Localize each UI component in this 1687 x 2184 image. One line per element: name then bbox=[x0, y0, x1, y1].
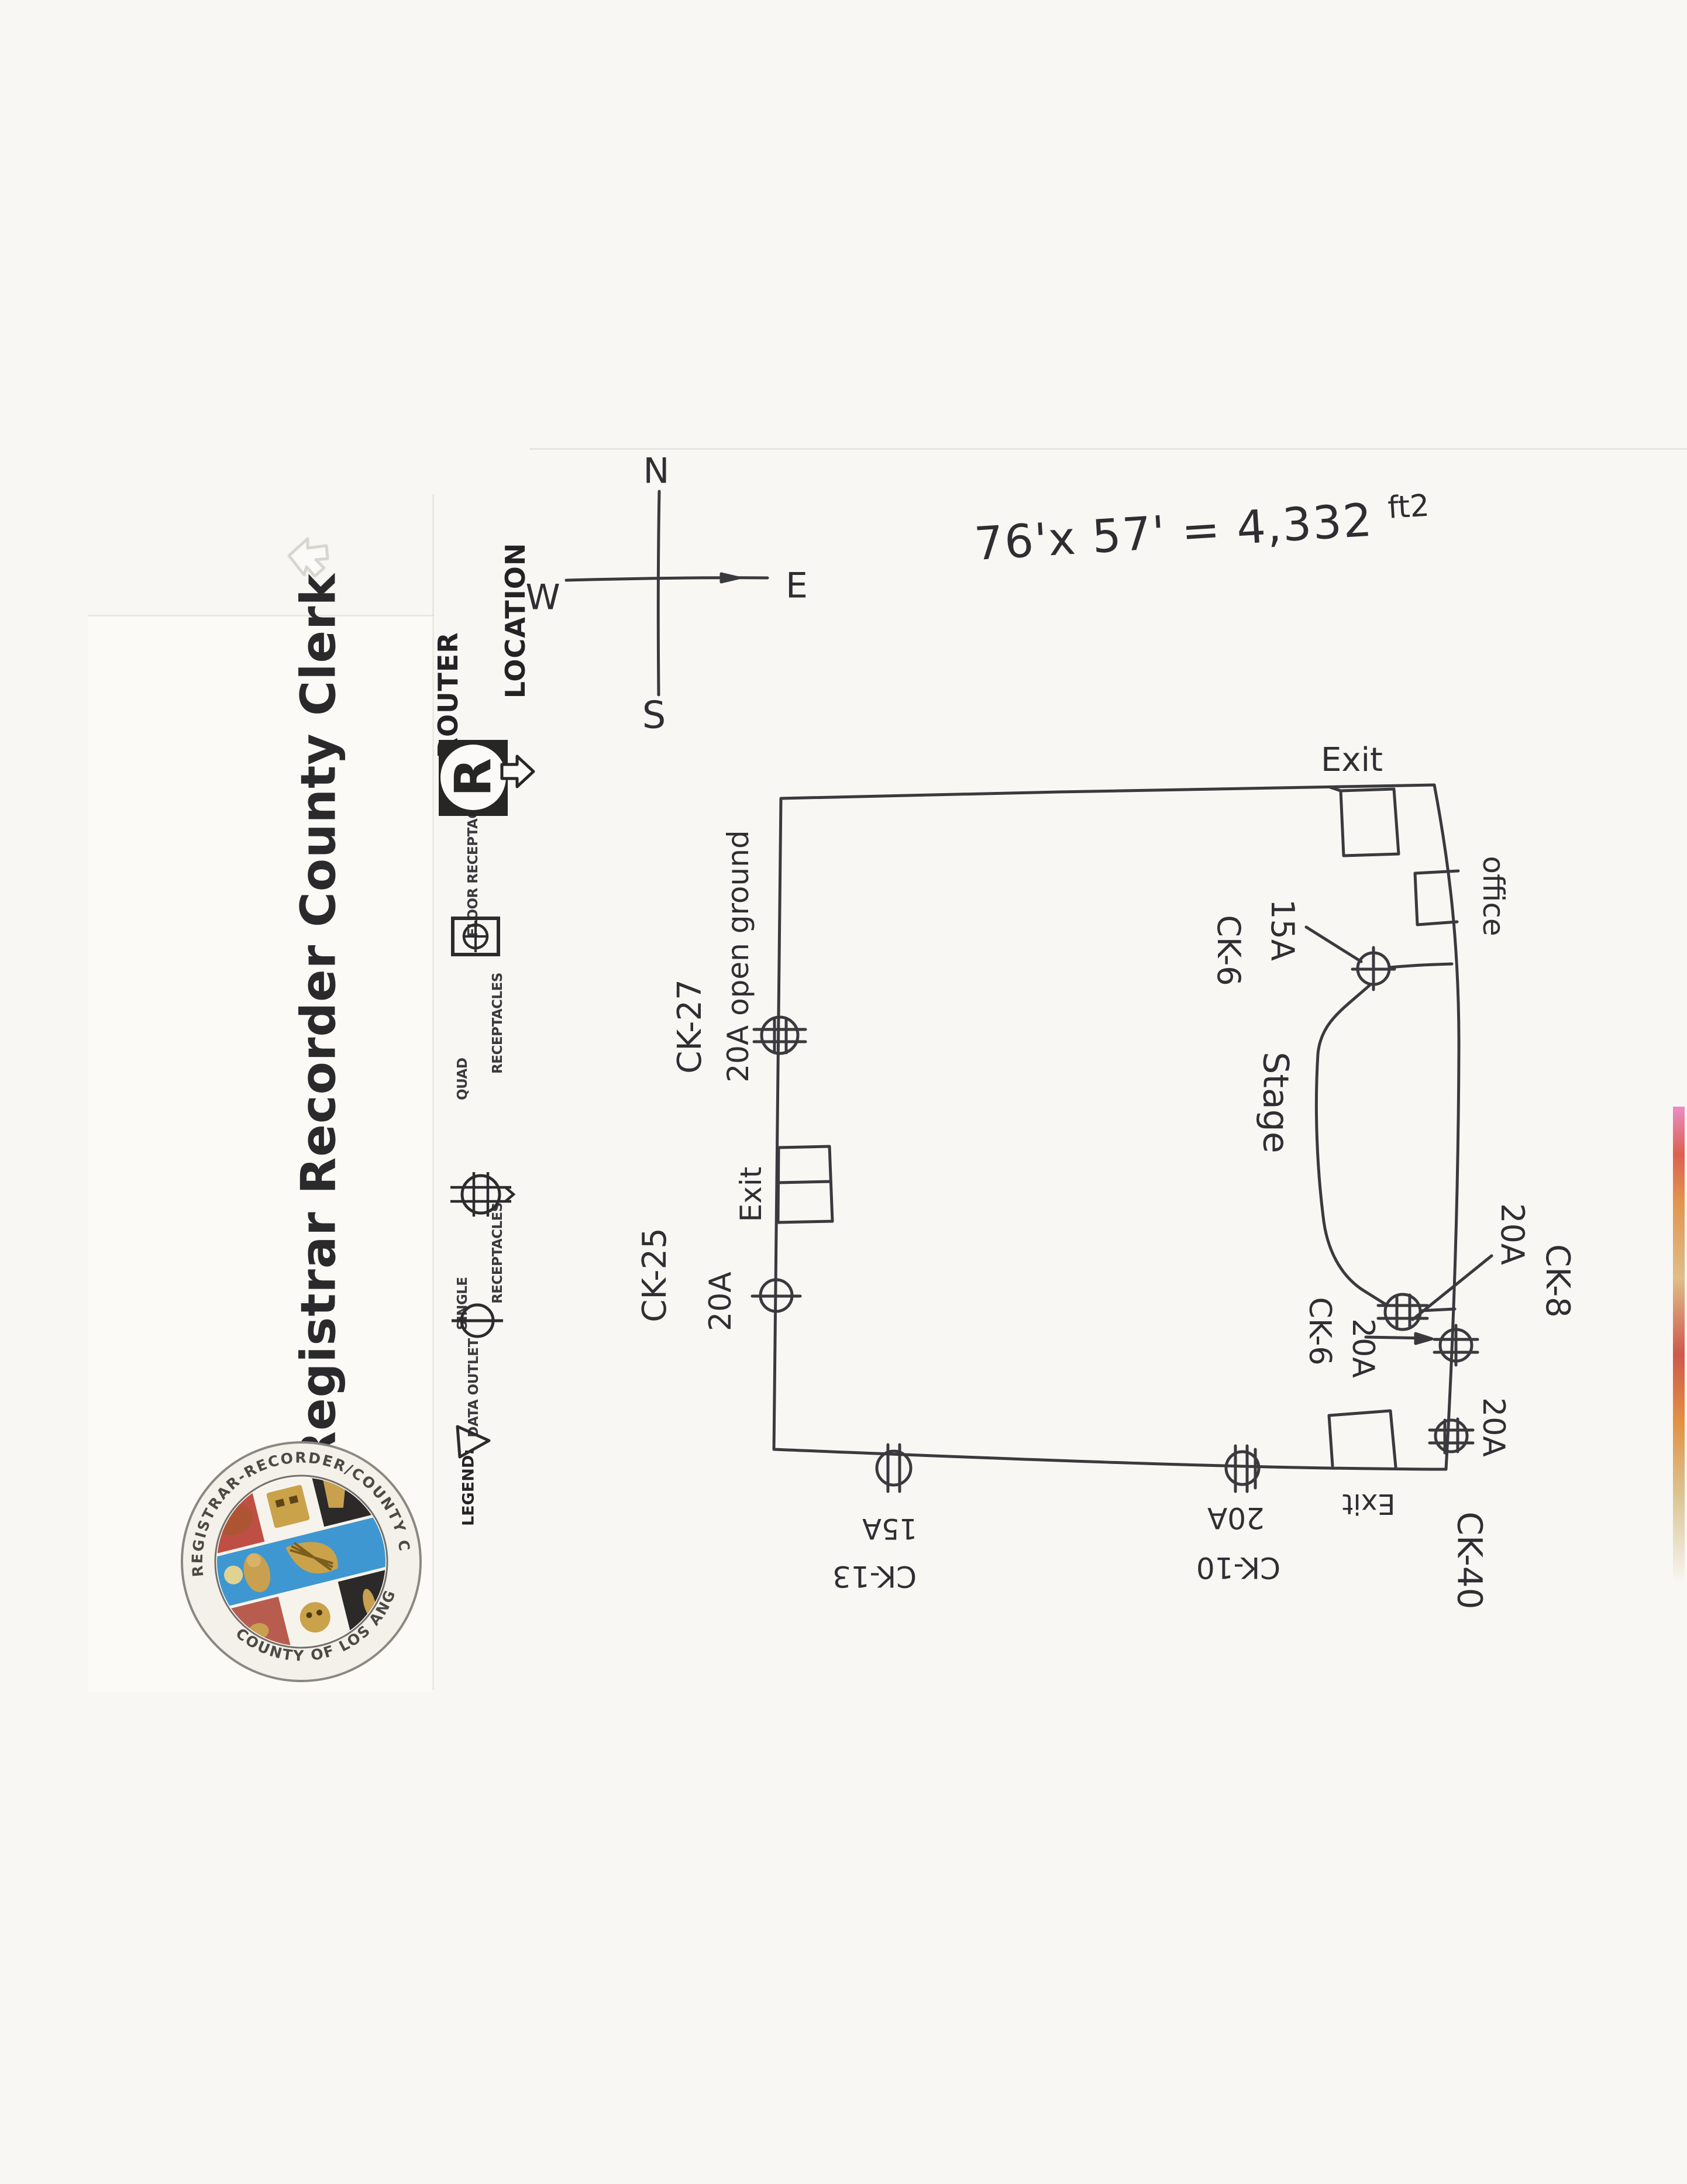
label-ck25: CK-25 bbox=[638, 1228, 673, 1322]
outlet-ck8-quad bbox=[1378, 1294, 1427, 1329]
label-office: office bbox=[1478, 856, 1509, 936]
label-20a-open-ground: 20A open ground bbox=[722, 830, 754, 1082]
ck6-top-wall-connector bbox=[1389, 964, 1452, 967]
label-ck6-top: CK-6 bbox=[1211, 915, 1245, 986]
outlet-ck6-wall-quad bbox=[1434, 1325, 1478, 1365]
door-bottom-exit bbox=[1329, 1411, 1396, 1467]
floor-plan-drawing bbox=[0, 0, 1687, 2184]
label-20a-ck25: 20A bbox=[704, 1272, 737, 1331]
door-top-exit bbox=[1330, 787, 1399, 856]
label-ck27: CK-27 bbox=[673, 979, 708, 1073]
outlet-ck10 bbox=[1226, 1446, 1259, 1491]
door-left-exit bbox=[778, 1146, 832, 1222]
label-ck8: CK-8 bbox=[1540, 1244, 1575, 1318]
outlet-corner-quad bbox=[1430, 1419, 1473, 1453]
label-ck40: CK-40 bbox=[1451, 1511, 1488, 1609]
label-15a-top: 15A bbox=[1265, 899, 1299, 961]
label-15a-ck13: 15A bbox=[862, 1513, 917, 1543]
label-ck10: CK-10 bbox=[1196, 1552, 1280, 1583]
compass-rose bbox=[566, 491, 767, 695]
stage-boundary bbox=[1316, 985, 1388, 1305]
label-exit-bottom: Exit bbox=[1342, 1488, 1396, 1518]
label-20a-ck10: 20A bbox=[1207, 1502, 1265, 1534]
scanned-document-page: Registrar Recorder County Clerk bbox=[0, 0, 1687, 2184]
label-20a-ck6: 20A bbox=[1347, 1318, 1379, 1378]
label-exit-top: Exit bbox=[1321, 743, 1383, 778]
outlet-ck13 bbox=[877, 1445, 911, 1491]
label-stage: Stage bbox=[1256, 1052, 1294, 1153]
label-ck6-stage: CK-6 bbox=[1303, 1297, 1336, 1366]
label-ck13: CK-13 bbox=[832, 1561, 917, 1592]
label-20a-ck8: 20A bbox=[1495, 1203, 1529, 1265]
leader-15a-ck6 bbox=[1306, 927, 1361, 962]
outlet-ck6-top-single bbox=[1352, 948, 1395, 990]
label-exit-left: Exit bbox=[735, 1167, 767, 1222]
label-20a-corner: 20A bbox=[1477, 1397, 1510, 1457]
